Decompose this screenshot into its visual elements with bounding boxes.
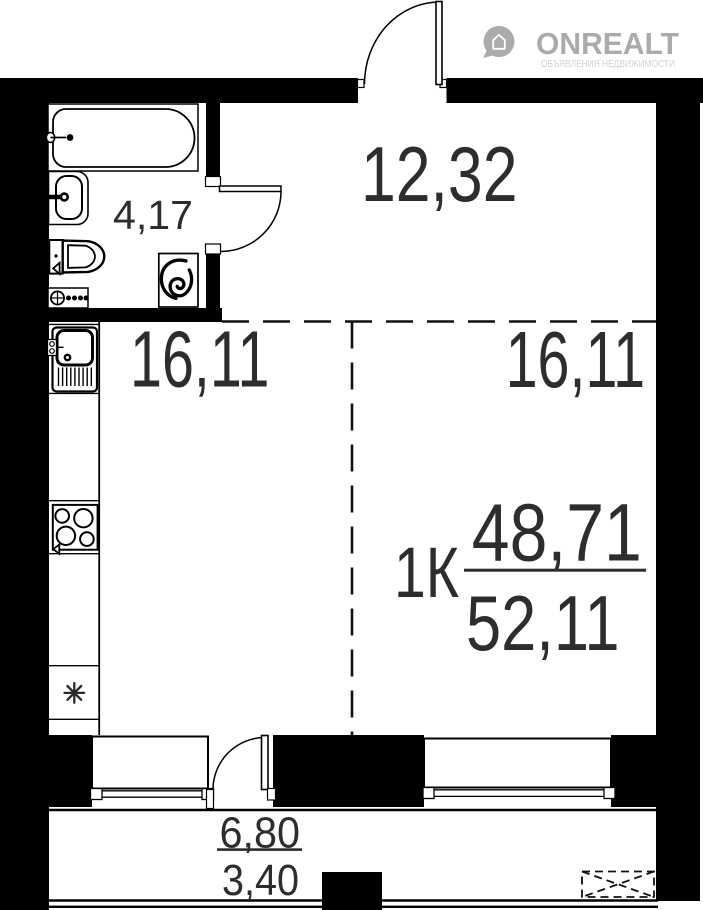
- svg-text:52,11: 52,11: [466, 579, 620, 667]
- svg-text:16,11: 16,11: [130, 315, 270, 404]
- svg-text:4,17: 4,17: [113, 192, 193, 238]
- svg-text:ОБЪЯВЛЕНИЯ НЕДВИЖИМОСТИ: ОБЪЯВЛЕНИЯ НЕДВИЖИМОСТИ: [541, 59, 675, 70]
- svg-text:16,11: 16,11: [506, 315, 645, 404]
- svg-text:3,40: 3,40: [222, 857, 299, 905]
- svg-text:12,32: 12,32: [361, 130, 518, 218]
- svg-text:1К: 1К: [394, 534, 459, 613]
- svg-text:48,71: 48,71: [472, 488, 642, 579]
- svg-text:ONREALT: ONREALT: [536, 26, 679, 61]
